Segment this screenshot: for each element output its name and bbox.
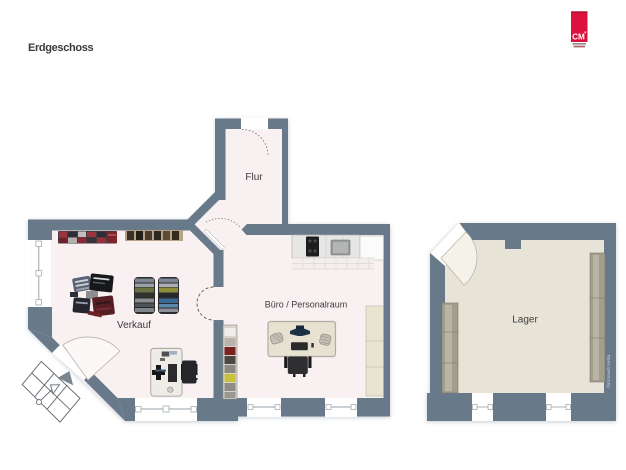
svg-text:Büro / Personalraum: Büro / Personalraum [265, 300, 348, 310]
svg-text:CM: CM [572, 33, 585, 42]
svg-text:Verkauf: Verkauf [117, 320, 151, 331]
svg-text:©immowelt media: ©immowelt media [606, 354, 611, 388]
svg-text:Flur: Flur [245, 172, 263, 183]
svg-text:Lager: Lager [512, 315, 538, 326]
svg-text:Erdgeschoss: Erdgeschoss [28, 42, 93, 54]
